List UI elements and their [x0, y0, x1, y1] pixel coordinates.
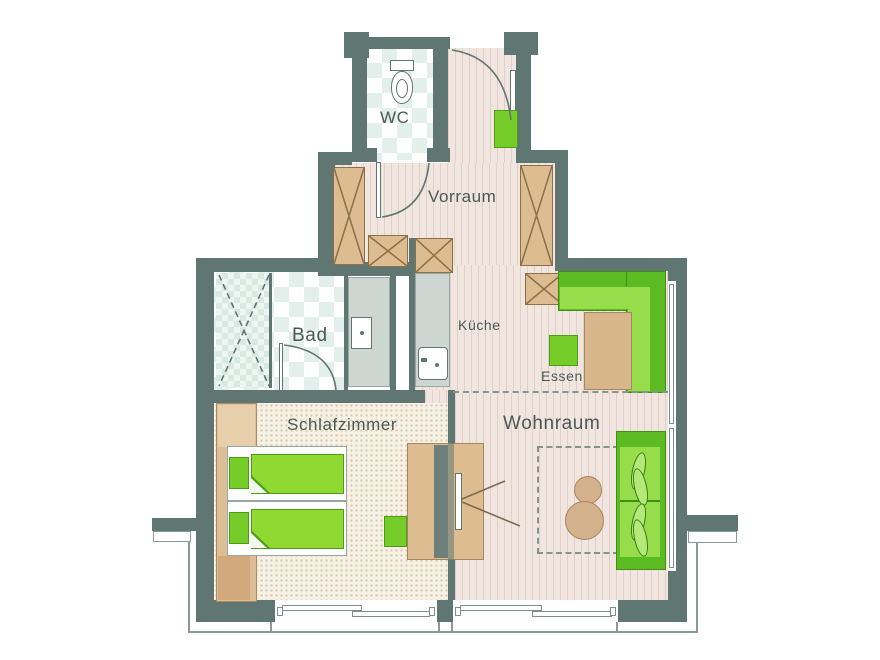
toilet-bowl: [391, 71, 413, 104]
wardrobe-bottom-section: [218, 556, 250, 600]
sink-drain: [435, 363, 439, 367]
toilet-tank: [390, 60, 414, 71]
side-table-large: [565, 501, 604, 540]
wall-bottom-right: [617, 600, 687, 622]
sink-faucet: [421, 358, 427, 362]
shower-glass-line: [269, 273, 272, 388]
room-label-essen: Essen: [541, 368, 583, 384]
cabinet-vorraum-small: [368, 235, 408, 267]
shower-floor: [216, 273, 272, 388]
wall-conn-top: [318, 152, 352, 165]
desk-chair: [384, 516, 407, 547]
balcony-tick-2: [616, 622, 618, 632]
wall-vanity-divider: [344, 272, 348, 390]
floor-plan: WC Vorraum Bad Küche Essen Schlafzimmer …: [0, 0, 880, 660]
wall-shaft-left: [390, 272, 396, 390]
room-label-schlafzimmer: Schlafzimmer: [287, 415, 397, 435]
wall-vorraum-right: [516, 47, 531, 163]
window-pane: [669, 428, 674, 568]
side-table-small: [574, 476, 602, 504]
wall-through-cabinet: [448, 443, 454, 560]
stub-right-outline: [688, 531, 737, 543]
wall-step2: [555, 258, 668, 271]
vanity-basin: [351, 317, 372, 349]
kueche-wohnraum-divider: [453, 391, 668, 393]
wall-wc-bottom-r: [427, 148, 450, 162]
balcony-tick-1: [270, 622, 272, 632]
stub-left-outline: [153, 531, 191, 542]
wall-right-mid: [555, 150, 568, 265]
dining-chair: [549, 335, 578, 366]
room-label-kueche: Küche: [458, 317, 501, 333]
tv-cabinet-inset: [434, 445, 448, 558]
wall-wc-right: [433, 48, 448, 162]
window-pane: [532, 611, 612, 617]
shaft: [396, 272, 409, 390]
room-label-wc: WC: [380, 108, 410, 128]
room-label-wohnraum: Wohnraum: [503, 413, 600, 435]
cabinet-kueche-top: [415, 238, 453, 273]
tv-screen: [455, 473, 462, 530]
bedroom-door-gap: [425, 390, 448, 403]
wardrobe-vorraum-left: [333, 167, 365, 265]
window-pane: [669, 284, 674, 424]
wardrobe-top-section: [218, 405, 255, 447]
bed-1-pillow: [229, 457, 249, 489]
window-endcap: [610, 607, 616, 616]
room-label-bad: Bad: [292, 325, 328, 347]
balcony-divider-a: [438, 622, 440, 632]
wall-wc-left: [352, 48, 367, 162]
wall-bad-top: [196, 258, 323, 272]
window-pane: [460, 605, 542, 611]
entry-mat: [494, 110, 518, 148]
wall-bottom-pier: [437, 600, 453, 622]
wardrobe-vorraum-right: [520, 165, 553, 266]
wall-wc-bottom-l: [352, 148, 377, 162]
wall-bedroom-top: [196, 390, 425, 403]
bed-2-mattress: [251, 509, 344, 549]
bed-2-pillow: [229, 512, 249, 544]
bad-door-leaf: [279, 343, 283, 391]
dining-table: [584, 312, 632, 390]
wall-stub-right: [687, 515, 738, 531]
wall-stub-left: [152, 518, 198, 531]
basin-drain: [360, 331, 364, 335]
wc-door-leaf: [376, 162, 381, 218]
window-wohnraum: [453, 600, 618, 622]
room-label-vorraum: Vorraum: [428, 187, 496, 207]
balcony-line-left: [188, 541, 190, 633]
window-pane: [282, 605, 362, 611]
kitchen-sink: [418, 347, 448, 380]
balcony-divider-b: [451, 622, 453, 632]
window-schlafzimmer: [275, 600, 437, 622]
window-right-wall: [668, 281, 676, 571]
balcony-line-right: [696, 543, 698, 633]
wall-bottom-left: [196, 600, 276, 622]
toilet-bowl-inner: [396, 79, 408, 98]
bed-1-mattress: [251, 454, 344, 494]
wall-left-main: [196, 258, 214, 622]
window-pane: [352, 611, 430, 617]
balcony-line-bottom: [188, 631, 698, 633]
window-endcap: [429, 607, 435, 616]
